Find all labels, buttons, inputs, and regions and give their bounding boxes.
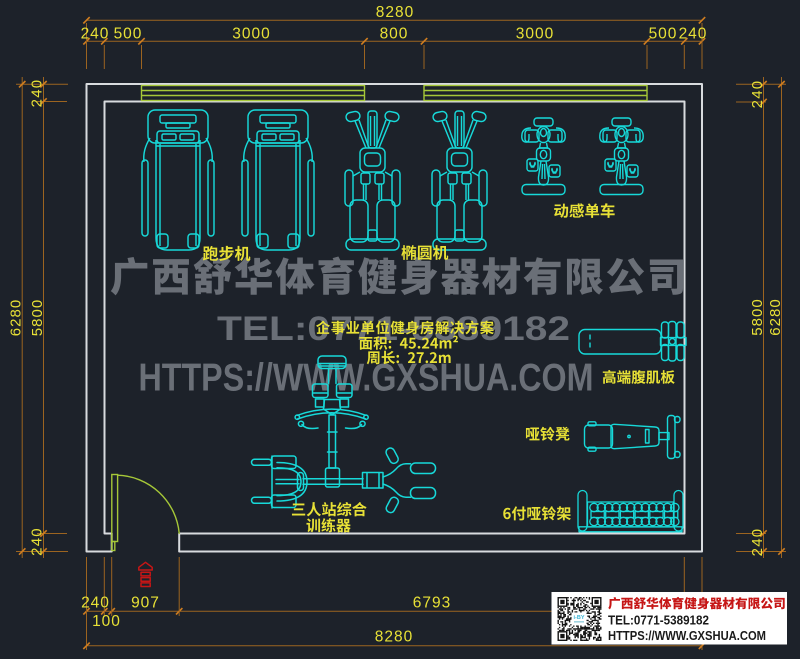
svg-text:240: 240 (679, 26, 708, 43)
svg-text:240: 240 (29, 79, 46, 108)
svg-text:3000: 3000 (516, 26, 554, 43)
svg-text:500: 500 (649, 26, 678, 43)
svg-text:907: 907 (131, 595, 160, 612)
svg-text:500: 500 (114, 26, 143, 43)
svg-text:HTTPS://WWW.GXSHUA.COM: HTTPS://WWW.GXSHUA.COM (139, 357, 594, 400)
svg-text:HTTPS://WWW.GXSHUA.COM: HTTPS://WWW.GXSHUA.COM (608, 628, 766, 643)
svg-text:5800: 5800 (749, 298, 766, 335)
svg-text:5800: 5800 (29, 299, 46, 336)
svg-text:100: 100 (92, 613, 121, 630)
svg-text:240: 240 (749, 528, 766, 557)
svg-text:3000: 3000 (232, 26, 270, 43)
svg-text:6280: 6280 (767, 298, 784, 335)
svg-text:8280: 8280 (375, 629, 413, 646)
svg-text:240: 240 (81, 595, 110, 612)
svg-text:i-BY: i-BY (574, 615, 585, 621)
svg-text:800: 800 (380, 26, 409, 43)
svg-text:TEL:0771-5389182: TEL:0771-5389182 (608, 613, 709, 628)
svg-text:8280: 8280 (376, 4, 414, 21)
svg-text:240: 240 (749, 80, 766, 109)
svg-text:6280: 6280 (8, 299, 25, 336)
svg-text:240: 240 (29, 527, 46, 556)
svg-text:240: 240 (81, 26, 110, 43)
svg-text:6793: 6793 (413, 595, 451, 612)
